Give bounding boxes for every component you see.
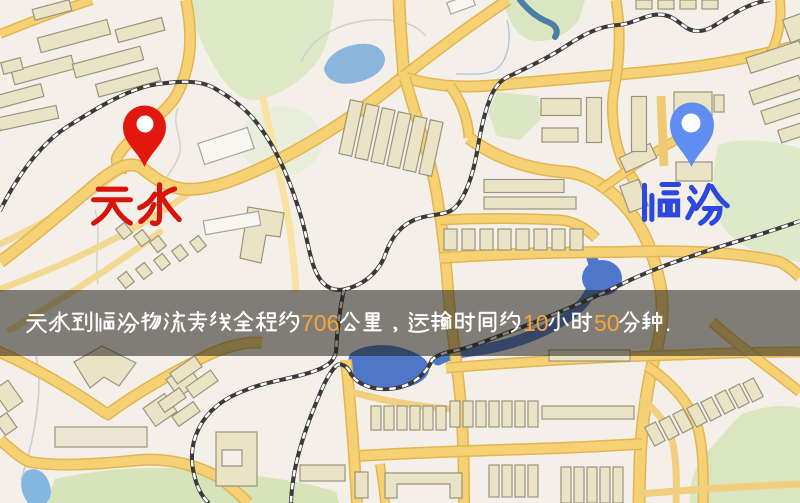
svg-text:.: . bbox=[665, 310, 671, 336]
svg-text:10: 10 bbox=[523, 310, 549, 336]
svg-text:706: 706 bbox=[301, 310, 339, 336]
svg-text:50: 50 bbox=[594, 310, 620, 336]
